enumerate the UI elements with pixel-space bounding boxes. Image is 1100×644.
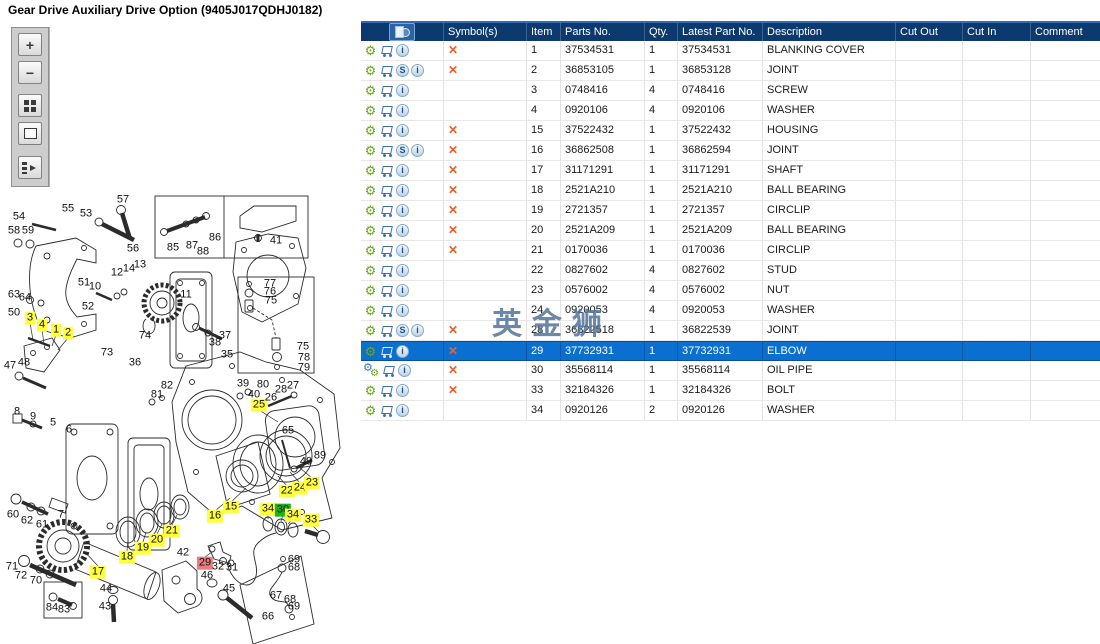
part-label-17[interactable]: 17 xyxy=(90,566,106,579)
cross-symbol: ✕ xyxy=(448,223,458,237)
part-label-3[interactable]: 3 xyxy=(25,312,35,325)
s-badge-icon[interactable]: S xyxy=(396,64,409,77)
symbol-cell xyxy=(444,281,527,301)
latest-part-no-cell: 31171291 xyxy=(678,161,763,181)
cross-symbol: ✕ xyxy=(448,243,458,257)
parts-no-cell: 2521A209 xyxy=(561,221,645,241)
part-label-61: 61 xyxy=(36,519,48,532)
part-label-12: 12 xyxy=(111,267,123,280)
parts-table-header: Symbol(s)ItemParts No.Qty.Latest Part No… xyxy=(361,21,1100,41)
cut-out-cell xyxy=(896,41,963,61)
table-row[interactable]: ⚙i ✕ 15 37522432 1 37522432 HOUSING xyxy=(361,121,1100,141)
table-row[interactable]: ⚙i 3 0748416 4 0748416 SCREW xyxy=(361,81,1100,101)
comment-cell xyxy=(1031,301,1100,321)
item-cell: 16 xyxy=(527,141,561,161)
part-label-21[interactable]: 21 xyxy=(164,525,180,538)
cut-out-cell xyxy=(896,381,963,401)
table-row[interactable]: ⚙i 34 0920126 2 0920126 WASHER xyxy=(361,401,1100,421)
column-header-qty[interactable]: Qty. xyxy=(645,23,678,41)
latest-part-no-cell: 2521A210 xyxy=(678,181,763,201)
part-label-16[interactable]: 16 xyxy=(207,510,223,523)
info-icon[interactable]: i xyxy=(398,364,411,377)
latest-part-no-cell: 36853128 xyxy=(678,61,763,81)
info-icon[interactable]: i xyxy=(396,345,409,358)
symbol-cell: ✕ xyxy=(444,201,527,221)
column-header-item[interactable]: Item xyxy=(527,23,561,41)
cut-out-cell xyxy=(896,61,963,81)
gear-icon[interactable]: ⚙ xyxy=(364,404,377,417)
latest-part-no-cell: 2721357 xyxy=(678,201,763,221)
cut-out-cell xyxy=(896,141,963,161)
cut-in-cell xyxy=(963,81,1031,101)
zoom-preview-icon[interactable] xyxy=(389,23,415,41)
cut-out-cell xyxy=(896,221,963,241)
double-gear-icon[interactable]: ⚙⚙ xyxy=(364,364,379,378)
qty-cell: 1 xyxy=(645,201,678,221)
part-label-47: 47 xyxy=(4,360,16,373)
table-row[interactable]: ⚙i 23 0576002 4 0576002 NUT xyxy=(361,281,1100,301)
symbol-cell: ✕ xyxy=(444,161,527,181)
part-label-28: 28 xyxy=(275,384,287,397)
part-label-67: 67 xyxy=(270,590,282,603)
info-icon[interactable]: i xyxy=(396,264,409,277)
cut-out-cell xyxy=(896,401,963,421)
symbol-cell: ✕ xyxy=(444,121,527,141)
cart-icon[interactable] xyxy=(379,184,394,197)
part-label-31: 31 xyxy=(226,562,238,575)
row-actions: ⚙i xyxy=(361,241,444,261)
description-cell: OIL PIPE xyxy=(763,361,896,381)
cross-symbol: ✕ xyxy=(448,363,458,377)
cart-icon[interactable] xyxy=(379,264,394,277)
s-badge-icon[interactable]: S xyxy=(396,144,409,157)
part-label-54: 54 xyxy=(13,211,25,224)
table-row[interactable]: ⚙i 22 0827602 4 0827602 STUD xyxy=(361,261,1100,281)
symbol-cell xyxy=(444,301,527,321)
gear-icon[interactable]: ⚙ xyxy=(364,104,377,117)
gear-icon[interactable]: ⚙ xyxy=(364,204,377,217)
part-label-1[interactable]: 1 xyxy=(51,324,61,337)
qty-cell: 1 xyxy=(645,61,678,81)
part-label-20[interactable]: 20 xyxy=(149,534,165,547)
symbol-cell: ✕ xyxy=(444,41,527,61)
description-cell: STUD xyxy=(763,261,896,281)
part-label-81: 81 xyxy=(151,389,163,402)
part-label-34[interactable]: 34 xyxy=(260,503,276,516)
part-label-35: 35 xyxy=(221,349,233,362)
part-label-85: 85 xyxy=(167,242,179,255)
cart-icon[interactable] xyxy=(379,224,394,237)
column-header-cut_in[interactable]: Cut In xyxy=(963,23,1031,41)
cart-icon[interactable] xyxy=(379,304,394,317)
latest-part-no-cell: 0576002 xyxy=(678,281,763,301)
latest-part-no-cell: 0827602 xyxy=(678,261,763,281)
qty-cell: 1 xyxy=(645,381,678,401)
part-label-73: 73 xyxy=(101,347,113,360)
qty-cell: 1 xyxy=(645,181,678,201)
cross-symbol: ✕ xyxy=(448,123,458,137)
row-actions: ⚙i xyxy=(361,221,444,241)
description-cell: JOINT xyxy=(763,321,896,341)
cross-symbol: ✕ xyxy=(448,143,458,157)
column-header-symbols[interactable]: Symbol(s) xyxy=(444,23,527,41)
cut-in-cell xyxy=(963,401,1031,421)
row-actions: ⚙i xyxy=(361,81,444,101)
item-cell: 18 xyxy=(527,181,561,201)
parts-no-cell: 37732931 xyxy=(561,341,645,361)
item-cell: 29 xyxy=(527,341,561,361)
cart-icon[interactable] xyxy=(379,324,394,337)
symbol-cell: ✕ xyxy=(444,321,527,341)
part-label-45: 45 xyxy=(223,583,235,596)
description-cell: SCREW xyxy=(763,81,896,101)
table-row[interactable]: ⚙i ✕ 18 2521A210 1 2521A210 BALL BEARING xyxy=(361,181,1100,201)
row-actions: ⚙i xyxy=(361,261,444,281)
table-row[interactable]: ⚙i ✕ 19 2721357 1 2721357 CIRCLIP xyxy=(361,201,1100,221)
info-icon[interactable]: i xyxy=(396,404,409,417)
symbol-cell: ✕ xyxy=(444,221,527,241)
qty-cell: 1 xyxy=(645,221,678,241)
gear-icon[interactable]: ⚙ xyxy=(364,345,377,358)
info-icon[interactable]: i xyxy=(396,104,409,117)
parts-no-cell: 36862508 xyxy=(561,141,645,161)
gear-icon[interactable]: ⚙ xyxy=(364,384,377,397)
description-cell: HOUSING xyxy=(763,121,896,141)
info-icon[interactable]: i xyxy=(396,184,409,197)
cross-symbol: ✕ xyxy=(448,43,458,57)
gear-icon[interactable]: ⚙ xyxy=(364,64,377,77)
part-label-83: 83 xyxy=(58,604,70,617)
table-row[interactable]: ⚙i ✕ 17 31171291 1 31171291 SHAFT xyxy=(361,161,1100,181)
table-row[interactable]: ⚙i ✕ 1 37534531 1 37534531 BLANKING COVE… xyxy=(361,41,1100,61)
cart-icon[interactable] xyxy=(379,244,394,257)
latest-part-no-cell: 0748416 xyxy=(678,81,763,101)
table-row[interactable]: ⚙Si ✕ 2 36853105 1 36853128 JOINT xyxy=(361,61,1100,81)
part-label-72: 72 xyxy=(15,570,27,583)
latest-part-no-cell: 0920106 xyxy=(678,101,763,121)
part-label-9: 9 xyxy=(30,411,36,424)
cart-icon[interactable] xyxy=(379,284,394,297)
row-actions: ⚙Si xyxy=(361,141,444,161)
table-row[interactable]: ⚙i ✕ 21 0170036 1 0170036 CIRCLIP xyxy=(361,241,1100,261)
qty-cell: 1 xyxy=(645,321,678,341)
cut-out-cell xyxy=(896,341,963,361)
symbol-cell: ✕ xyxy=(444,241,527,261)
item-cell: 20 xyxy=(527,221,561,241)
comment-cell xyxy=(1031,161,1100,181)
comment-cell xyxy=(1031,181,1100,201)
part-label-49: 49 xyxy=(300,456,312,469)
part-label-6: 6 xyxy=(66,424,72,437)
gear-icon[interactable]: ⚙ xyxy=(364,184,377,197)
comment-cell xyxy=(1031,341,1100,361)
description-cell: WASHER xyxy=(763,101,896,121)
part-label-50: 50 xyxy=(8,307,20,320)
parts-no-cell: 37534531 xyxy=(561,41,645,61)
cart-icon[interactable] xyxy=(379,404,394,417)
description-cell: NUT xyxy=(763,281,896,301)
part-label-29[interactable]: 29 xyxy=(197,557,213,570)
info-icon[interactable]: i xyxy=(396,304,409,317)
table-row[interactable]: ⚙i ✕ 29 37732931 1 37732931 ELBOW xyxy=(361,341,1100,361)
row-actions: ⚙i xyxy=(361,281,444,301)
column-header-tools[interactable] xyxy=(361,23,444,41)
parts-no-cell: 35568114 xyxy=(561,361,645,381)
table-row[interactable]: ⚙⚙i ✕ 30 35568114 1 35568114 OIL PIPE xyxy=(361,361,1100,381)
part-label-42: 42 xyxy=(177,547,189,560)
part-label-36: 36 xyxy=(129,357,141,370)
part-label-10: 10 xyxy=(89,281,101,294)
cut-out-cell xyxy=(896,161,963,181)
description-cell: WASHER xyxy=(763,401,896,421)
part-label-55: 55 xyxy=(62,203,74,216)
table-row[interactable]: ⚙i 4 0920106 4 0920106 WASHER xyxy=(361,101,1100,121)
gear-icon[interactable]: ⚙ xyxy=(364,144,377,157)
info-icon[interactable]: i xyxy=(396,204,409,217)
table-row[interactable]: ⚙i 24 0920053 4 0920053 WASHER xyxy=(361,301,1100,321)
qty-cell: 1 xyxy=(645,121,678,141)
symbol-cell xyxy=(444,81,527,101)
cut-in-cell xyxy=(963,141,1031,161)
cart-icon[interactable] xyxy=(379,384,394,397)
part-label-15[interactable]: 15 xyxy=(223,501,239,514)
part-label-58: 58 xyxy=(8,225,20,238)
description-cell: BOLT xyxy=(763,381,896,401)
cut-out-cell xyxy=(896,321,963,341)
row-actions: ⚙i xyxy=(361,121,444,141)
item-cell: 19 xyxy=(527,201,561,221)
info-icon[interactable]: i xyxy=(396,164,409,177)
column-header-description[interactable]: Description xyxy=(763,23,896,41)
cut-in-cell xyxy=(963,161,1031,181)
parts-no-cell: 36822518 xyxy=(561,321,645,341)
part-label-64: 64 xyxy=(19,292,31,305)
column-header-parts_no[interactable]: Parts No. xyxy=(561,23,645,41)
cart-icon[interactable] xyxy=(379,144,394,157)
part-label-86: 86 xyxy=(209,232,221,245)
cut-out-cell xyxy=(896,261,963,281)
qty-cell: 4 xyxy=(645,301,678,321)
part-label-18[interactable]: 18 xyxy=(119,551,135,564)
item-cell: 30 xyxy=(527,361,561,381)
cut-out-cell xyxy=(896,301,963,321)
part-label-56: 56 xyxy=(127,243,139,256)
parts-table-body: ⚙i ✕ 1 37534531 1 37534531 BLANKING COVE… xyxy=(361,41,1100,421)
gear-icon[interactable]: ⚙ xyxy=(364,164,377,177)
item-cell: 28 xyxy=(527,321,561,341)
info-icon[interactable]: i xyxy=(411,324,424,337)
item-cell: 4 xyxy=(527,101,561,121)
description-cell: JOINT xyxy=(763,141,896,161)
description-cell: WASHER xyxy=(763,301,896,321)
info-icon[interactable]: i xyxy=(396,224,409,237)
comment-cell xyxy=(1031,221,1100,241)
gear-icon[interactable]: ⚙ xyxy=(364,84,377,97)
comment-cell xyxy=(1031,61,1100,81)
part-label-23[interactable]: 23 xyxy=(304,477,320,490)
cut-out-cell xyxy=(896,101,963,121)
description-cell: SHAFT xyxy=(763,161,896,181)
latest-part-no-cell: 0170036 xyxy=(678,241,763,261)
cut-in-cell xyxy=(963,101,1031,121)
gear-icon[interactable]: ⚙ xyxy=(364,244,377,257)
comment-cell xyxy=(1031,101,1100,121)
item-cell: 17 xyxy=(527,161,561,181)
part-label-38: 38 xyxy=(209,337,221,350)
table-row[interactable]: ⚙Si ✕ 28 36822518 1 36822539 JOINT xyxy=(361,321,1100,341)
part-label-66: 66 xyxy=(262,611,274,624)
column-header-comment[interactable]: Comment xyxy=(1031,23,1100,41)
item-cell: 2 xyxy=(527,61,561,81)
cart-icon[interactable] xyxy=(379,164,394,177)
part-label-53: 53 xyxy=(80,208,92,221)
part-label-59: 59 xyxy=(22,225,34,238)
cut-in-cell xyxy=(963,121,1031,141)
cut-out-cell xyxy=(896,81,963,101)
symbol-cell xyxy=(444,401,527,421)
cut-out-cell xyxy=(896,281,963,301)
part-label-52: 52 xyxy=(82,301,94,314)
cart-icon[interactable] xyxy=(379,345,394,358)
cut-out-cell xyxy=(896,361,963,381)
item-cell: 23 xyxy=(527,281,561,301)
row-actions: ⚙i xyxy=(361,381,444,401)
cut-in-cell xyxy=(963,181,1031,201)
part-label-84: 84 xyxy=(46,602,58,615)
symbol-cell: ✕ xyxy=(444,361,527,381)
part-label-13: 13 xyxy=(134,259,146,272)
qty-cell: 2 xyxy=(645,401,678,421)
cart-icon[interactable] xyxy=(379,124,394,137)
info-icon[interactable]: i xyxy=(396,244,409,257)
part-label-68: 68 xyxy=(288,562,300,575)
description-cell: JOINT xyxy=(763,61,896,81)
info-icon[interactable]: i xyxy=(411,64,424,77)
cut-in-cell xyxy=(963,321,1031,341)
info-icon[interactable]: i xyxy=(396,84,409,97)
part-label-57: 57 xyxy=(117,194,129,207)
cut-in-cell xyxy=(963,301,1031,321)
item-cell: 15 xyxy=(527,121,561,141)
cross-symbol: ✕ xyxy=(448,183,458,197)
parts-no-cell: 0920053 xyxy=(561,301,645,321)
parts-no-cell: 31171291 xyxy=(561,161,645,181)
row-actions: ⚙i xyxy=(361,101,444,121)
cross-symbol: ✕ xyxy=(448,203,458,217)
description-cell: CIRCLIP xyxy=(763,201,896,221)
qty-cell: 4 xyxy=(645,261,678,281)
cut-in-cell xyxy=(963,281,1031,301)
symbol-cell: ✕ xyxy=(444,381,527,401)
info-icon[interactable]: i xyxy=(396,44,409,57)
cart-icon[interactable] xyxy=(381,364,396,377)
row-actions: ⚙⚙i xyxy=(361,361,444,381)
comment-cell xyxy=(1031,241,1100,261)
info-icon[interactable]: i xyxy=(396,384,409,397)
cut-in-cell xyxy=(963,41,1031,61)
table-row[interactable]: ⚙Si ✕ 16 36862508 1 36862594 JOINT xyxy=(361,141,1100,161)
gear-icon[interactable]: ⚙ xyxy=(364,264,377,277)
column-header-latest_part_no[interactable]: Latest Part No. xyxy=(678,23,763,41)
symbol-cell: ✕ xyxy=(444,141,527,161)
cart-icon[interactable] xyxy=(379,44,394,57)
part-label-32: 32 xyxy=(212,561,224,574)
latest-part-no-cell: 0920053 xyxy=(678,301,763,321)
cart-icon[interactable] xyxy=(379,104,394,117)
latest-part-no-cell: 36822539 xyxy=(678,321,763,341)
info-icon[interactable]: i xyxy=(411,144,424,157)
symbol-cell: ✕ xyxy=(444,341,527,361)
part-label-11: 11 xyxy=(180,289,191,302)
part-label-74: 74 xyxy=(139,330,151,343)
row-actions: ⚙i xyxy=(361,181,444,201)
row-actions: ⚙i xyxy=(361,341,444,361)
comment-cell xyxy=(1031,141,1100,161)
gear-icon[interactable]: ⚙ xyxy=(364,304,377,317)
description-cell: CIRCLIP xyxy=(763,241,896,261)
info-icon[interactable]: i xyxy=(396,124,409,137)
s-badge-icon[interactable]: S xyxy=(396,324,409,337)
part-label-2[interactable]: 2 xyxy=(63,327,73,340)
row-actions: ⚙Si xyxy=(361,61,444,81)
parts-table: Symbol(s)ItemParts No.Qty.Latest Part No… xyxy=(361,21,1100,421)
table-row[interactable]: ⚙i ✕ 20 2521A209 1 2521A209 BALL BEARING xyxy=(361,221,1100,241)
comment-cell xyxy=(1031,321,1100,341)
latest-part-no-cell: 37732931 xyxy=(678,341,763,361)
cross-symbol: ✕ xyxy=(448,383,458,397)
qty-cell: 4 xyxy=(645,101,678,121)
latest-part-no-cell: 37522432 xyxy=(678,121,763,141)
info-icon[interactable]: i xyxy=(396,284,409,297)
row-actions: ⚙i xyxy=(361,41,444,61)
cross-symbol: ✕ xyxy=(448,63,458,77)
parts-no-cell: 36853105 xyxy=(561,61,645,81)
comment-cell xyxy=(1031,361,1100,381)
latest-part-no-cell: 35568114 xyxy=(678,361,763,381)
gear-icon[interactable]: ⚙ xyxy=(364,224,377,237)
part-label-34[interactable]: 34 xyxy=(285,509,301,522)
part-label-4[interactable]: 4 xyxy=(37,319,47,332)
part-label-41: 41 xyxy=(270,235,282,248)
part-label-8: 8 xyxy=(14,406,20,419)
description-cell: BALL BEARING xyxy=(763,181,896,201)
qty-cell: 1 xyxy=(645,241,678,261)
qty-cell: 1 xyxy=(645,341,678,361)
cart-icon[interactable] xyxy=(379,64,394,77)
cross-symbol: ✕ xyxy=(448,344,458,358)
gear-icon[interactable]: ⚙ xyxy=(364,324,377,337)
qty-cell: 1 xyxy=(645,361,678,381)
cart-icon[interactable] xyxy=(379,84,394,97)
row-actions: ⚙Si xyxy=(361,321,444,341)
parts-no-cell: 0920126 xyxy=(561,401,645,421)
gear-icon[interactable]: ⚙ xyxy=(364,284,377,297)
gear-icon[interactable]: ⚙ xyxy=(364,124,377,137)
item-cell: 22 xyxy=(527,261,561,281)
latest-part-no-cell: 0920126 xyxy=(678,401,763,421)
qty-cell: 1 xyxy=(645,141,678,161)
cart-icon[interactable] xyxy=(379,204,394,217)
part-label-44: 44 xyxy=(100,583,112,596)
part-label-33[interactable]: 33 xyxy=(303,514,319,527)
symbol-cell: ✕ xyxy=(444,61,527,81)
parts-no-cell: 0920106 xyxy=(561,101,645,121)
item-cell: 33 xyxy=(527,381,561,401)
column-header-cut_out[interactable]: Cut Out xyxy=(896,23,963,41)
description-cell: ELBOW xyxy=(763,341,896,361)
gear-icon[interactable]: ⚙ xyxy=(364,44,377,57)
table-row[interactable]: ⚙i ✕ 33 32184326 1 32184326 BOLT xyxy=(361,381,1100,401)
